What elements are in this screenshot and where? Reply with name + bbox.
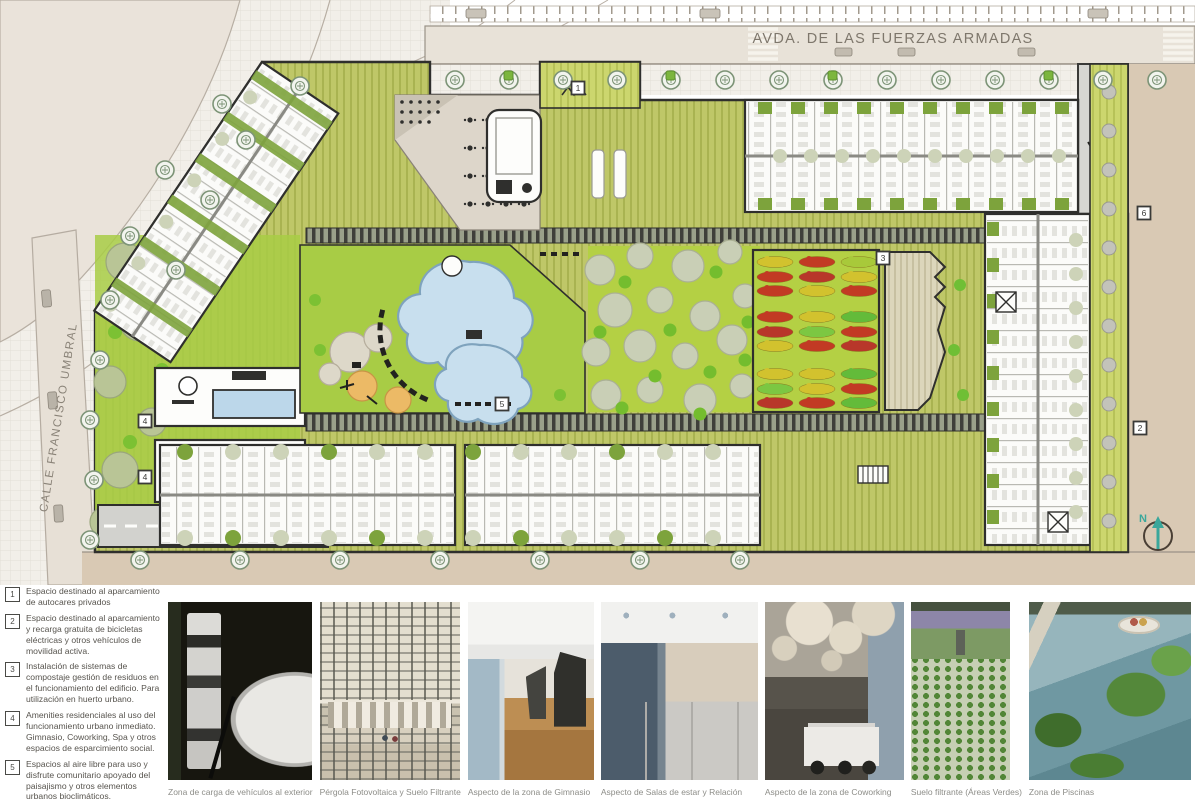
photo-card-7: Zona de Piscinas [1029,602,1191,797]
natural-pool-photo [1029,602,1191,780]
photo-card-1: Zona de carga de vehículos al exterior [168,602,313,797]
photo-caption: Aspecto de la zona de Gimnasio [468,787,594,797]
shrub-icon [666,71,675,80]
tree-icon [716,71,734,89]
photo-card-4: Aspecto de Salas de estar y Relación [601,602,758,797]
photo-card-3: Aspecto de la zona de Gimnasio [468,602,594,797]
legend-item-text: Amenities residenciales al uso del funci… [26,710,165,754]
photo-strip: Zona de carga de vehículos al exteriorPé… [168,602,1191,797]
legend-item-text: Espacio destinado al aparcamiento y reca… [26,613,165,657]
svg-text:3: 3 [881,253,886,263]
lounge-photo [601,602,758,780]
svg-text:6: 6 [1142,208,1147,218]
legend-item-4: 4Amenities residenciales al uso del func… [5,710,165,754]
marker-6: 6 [1138,207,1151,220]
legend-item-3: 3Instalación de sistemas de compostaje g… [5,661,165,705]
legend-item-2: 2Espacio destinado al aparcamiento y rec… [5,613,165,657]
tree-icon [201,191,219,209]
legend-number-badge: 4 [5,711,20,726]
tree-icon [531,551,549,569]
marker-5: 5 [496,398,509,411]
photo-card-2: Pérgola Fotovoltaica y Suelo Filtrante [320,602,461,797]
svg-text:4: 4 [143,472,148,482]
photo-caption: Pérgola Fotovoltaica y Suelo Filtrante [320,787,461,797]
shrub-icon [504,71,513,80]
svg-text:1: 1 [576,83,581,93]
photovoltaic-pergola-photo [320,602,460,780]
central-tree-garden [582,240,760,421]
photo-caption: Zona de Piscinas [1029,787,1191,797]
legend-item-5: 5Espacios al aire libre para uso y disfr… [5,759,165,802]
marker-1: 1 [572,82,585,95]
tree-icon [608,71,626,89]
photo-caption: Suelo filtrante (Áreas Verdes) [911,787,1022,797]
legend-item-text: Espacios al aire libre para uso y disfru… [26,759,165,802]
tree-icon [431,551,449,569]
street-top-label: AVDA. DE LAS FUERZAS ARMADAS [752,31,1033,47]
photo-card-6: Suelo filtrante (Áreas Verdes) [911,602,1022,797]
ev-charging-photo [168,602,312,780]
tree-icon [291,77,309,95]
tree-icon [91,351,109,369]
tree-icon [81,531,99,549]
tree-icon [213,95,231,113]
tree-icon [167,261,185,279]
spa-block [155,368,305,426]
site-plan-sheet: CALLE FRANCISCO UMBRAL AVDA. DE LAS FUER… [0,0,1195,802]
shrub-icon [828,71,837,80]
svg-text:2: 2 [1138,423,1143,433]
tree-icon [101,291,119,309]
tree-icon [770,71,788,89]
photo-caption: Zona de carga de vehículos al exterior [168,787,313,797]
master-plan-drawing: CALLE FRANCISCO UMBRAL AVDA. DE LAS FUER… [0,0,1195,585]
tree-icon [331,551,349,569]
legend-number-badge: 5 [5,760,20,775]
tree-icon [85,471,103,489]
photo-caption: Aspecto de la zona de Coworking [765,787,904,797]
legend: 1Espacio destinado al aparcamiento de au… [5,586,165,802]
filter-floor-photo [911,602,1010,780]
tree-icon [986,71,1004,89]
photo-card-5: Aspecto de la zona de Coworking [765,602,904,797]
apartment-wing-north [745,100,1078,212]
legend-number-badge: 3 [5,662,20,677]
legend-item-text: Instalación de sistemas de compostaje ge… [26,661,165,705]
coworking-photo [765,602,904,780]
legend-item-text: Espacio destinado al aparcamiento de aut… [26,586,165,608]
marker-4: 4 [139,415,152,428]
tree-icon [1148,71,1166,89]
svg-text:4: 4 [143,416,148,426]
tree-icon [731,551,749,569]
tree-icon [231,551,249,569]
marker-4: 4 [139,471,152,484]
tree-icon [121,227,139,245]
gym-photo [468,602,594,780]
svg-text:5: 5 [500,399,505,409]
tree-icon [131,551,149,569]
shrub-icon [1044,71,1053,80]
tree-icon [554,71,572,89]
tree-icon [878,71,896,89]
tree-icon [446,71,464,89]
legend-number-badge: 1 [5,587,20,602]
tree-icon [631,551,649,569]
tree-icon [1094,71,1112,89]
tree-icon [237,131,255,149]
tree-icon [932,71,950,89]
stair-icon [858,466,888,483]
marker-3: 3 [877,252,890,265]
filter-floor-strip [1090,64,1128,552]
photo-caption: Aspecto de Salas de estar y Relación [601,787,758,797]
north-label: N [1139,513,1147,525]
legend-item-1: 1Espacio destinado al aparcamiento de au… [5,586,165,608]
tree-icon [156,161,174,179]
legend-number-badge: 2 [5,614,20,629]
marker-2: 2 [1134,422,1147,435]
apartment-wing-east [985,214,1090,545]
tree-icon [81,411,99,429]
